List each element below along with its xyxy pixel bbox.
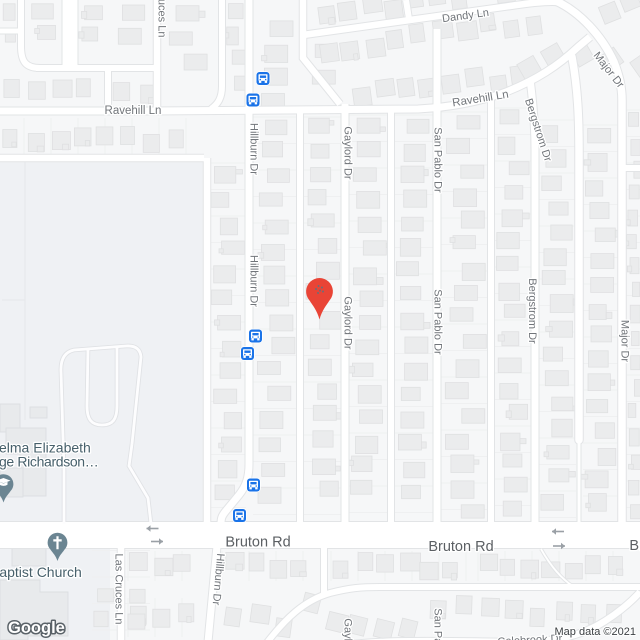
svg-text:Hillburn Dr: Hillburn Dr — [248, 123, 260, 175]
svg-text:Las Cruces Ln: Las Cruces Ln — [156, 0, 168, 37]
svg-text:San Pablo Dr: San Pablo Dr — [432, 289, 444, 355]
svg-text:Major Dr: Major Dr — [619, 320, 631, 363]
svg-text:Baptist Church: Baptist Church — [0, 564, 82, 580]
svg-text:Google: Google — [8, 619, 65, 637]
svg-text:elma Elizabethge Richardson…: elma Elizabethge Richardson… — [0, 440, 98, 470]
svg-text:Gaylord Dr: Gaylord Dr — [342, 296, 354, 350]
svg-text:Bruton Rd: Bruton Rd — [428, 539, 493, 555]
svg-text:San Pablo Dr: San Pablo Dr — [432, 608, 444, 640]
svg-text:Bruton Rd: Bruton Rd — [629, 538, 640, 554]
svg-text:San Pablo Dr: San Pablo Dr — [432, 127, 444, 193]
svg-text:Gaylord Dr: Gaylord Dr — [342, 618, 354, 640]
svg-text:Las Cruces Ln: Las Cruces Ln — [113, 554, 125, 625]
svg-text:Hillburn Dr: Hillburn Dr — [248, 255, 260, 307]
svg-text:Bergstrom Dr: Bergstrom Dr — [526, 278, 538, 344]
svg-text:Ravehill Ln: Ravehill Ln — [105, 105, 162, 117]
svg-text:Gaylord Dr: Gaylord Dr — [342, 126, 354, 180]
svg-text:Bruton Rd: Bruton Rd — [225, 535, 290, 551]
svg-text:Map data ©2021: Map data ©2021 — [555, 626, 637, 638]
